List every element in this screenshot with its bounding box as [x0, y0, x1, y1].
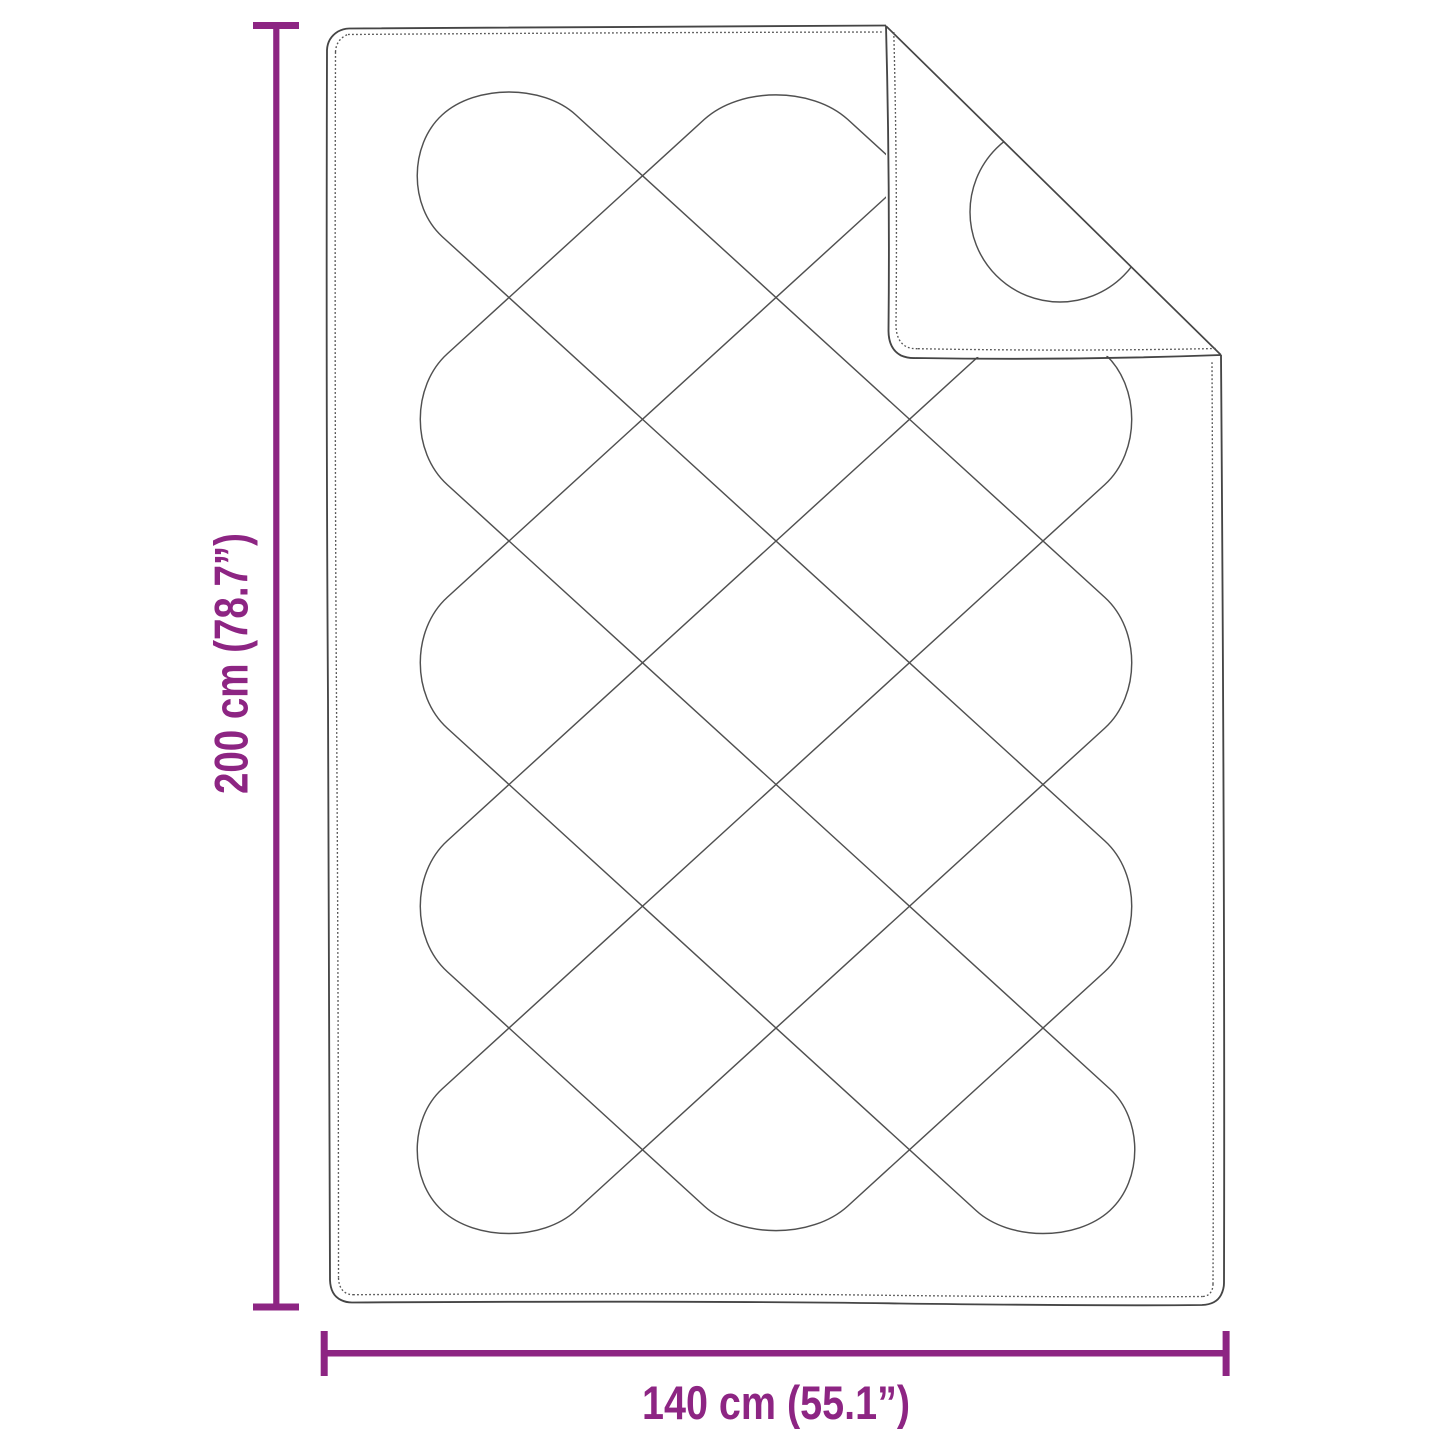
svg-text:140 cm (55.1”): 140 cm (55.1”) — [642, 1376, 910, 1429]
svg-text:200 cm (78.7”): 200 cm (78.7”) — [205, 533, 258, 794]
